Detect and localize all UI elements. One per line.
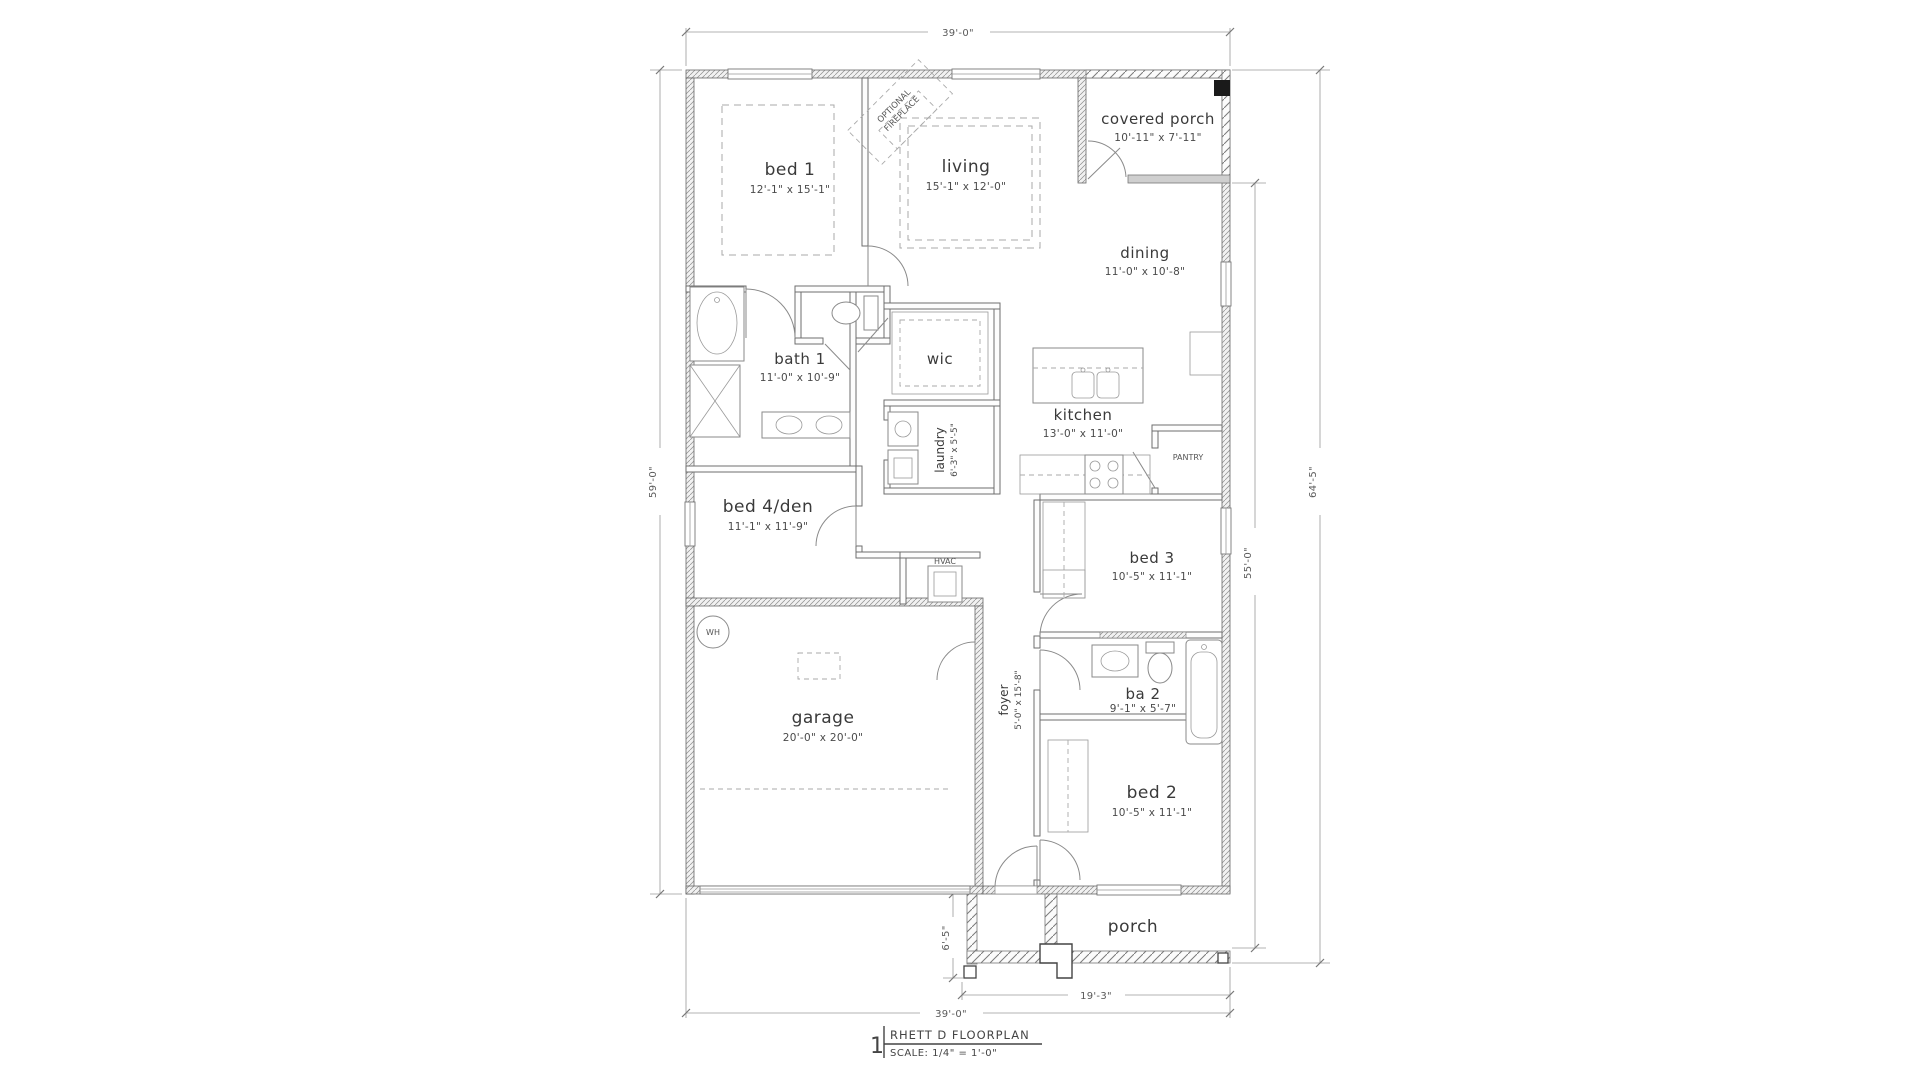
dim-porch-depth: 6'-5" <box>941 925 952 950</box>
dashed-areas <box>722 105 1040 255</box>
room-pantry-label: PANTRY <box>1173 453 1204 462</box>
dim-top-width: 39'-0" <box>942 28 974 39</box>
svg-text:living: living <box>942 157 991 177</box>
dim-porch-width: 19'-3" <box>1080 991 1112 1002</box>
front-porch-structure <box>964 894 1230 978</box>
porch-corner-column <box>1040 944 1072 978</box>
svg-text:20'-0" x 20'-0": 20'-0" x 20'-0" <box>783 732 863 744</box>
vanity-bath1-icon <box>762 412 850 438</box>
room-wic-label: wic <box>927 350 953 368</box>
toilet-ba2-icon <box>1146 642 1174 683</box>
svg-text:12'-1" x 15'-1": 12'-1" x 15'-1" <box>750 184 830 196</box>
svg-text:bed 1: bed 1 <box>765 160 816 180</box>
svg-text:10'-11" x 7'-11": 10'-11" x 7'-11" <box>1114 132 1201 144</box>
hvac-unit-icon <box>928 566 962 602</box>
room-bath1: bath 1 11'-0" x 10'-9" <box>760 350 840 384</box>
svg-text:kitchen: kitchen <box>1054 406 1113 424</box>
room-living: living 15'-1" x 12'-0" <box>926 157 1006 193</box>
plan-scale: SCALE: 1/4" = 1'-0" <box>890 1048 997 1059</box>
range-icon <box>1085 455 1123 494</box>
plan-title: RHETT D FLOORPLAN <box>890 1028 1030 1042</box>
room-bed3: bed 3 10'-5" x 11'-1" <box>1112 549 1192 583</box>
svg-text:10'-5" x 11'-1": 10'-5" x 11'-1" <box>1112 807 1192 819</box>
svg-text:laundry: laundry <box>933 427 947 473</box>
svg-text:11'-0" x 10'-9": 11'-0" x 10'-9" <box>760 372 840 384</box>
window-bed3 <box>1221 508 1231 554</box>
room-garage: garage 20'-0" x 20'-0" <box>783 708 863 744</box>
kitchen-island <box>1033 348 1143 403</box>
svg-text:foyer: foyer <box>997 684 1011 715</box>
dim-bottom-width: 39'-0" <box>935 1009 967 1020</box>
washer-dryer-icon <box>888 412 918 484</box>
svg-text:13'-0" x 11'-0": 13'-0" x 11'-0" <box>1043 428 1123 440</box>
room-foyer: foyer 5'-0" x 15'-8" <box>997 670 1024 729</box>
bed3-closet <box>1043 502 1085 598</box>
room-bed2: bed 2 10'-5" x 11'-1" <box>1112 783 1192 819</box>
interior-walls <box>686 78 1222 886</box>
window-bed2 <box>1097 885 1181 895</box>
room-labels: bed 1 12'-1" x 15'-1" living 15'-1" x 12… <box>706 110 1215 937</box>
porch-post <box>964 966 976 978</box>
room-dining: dining 11'-0" x 10'-8" <box>1105 244 1185 278</box>
floorplan-svg: 39'-0" 59'-0" 55'-0" 64'-5" 6'-5" <box>0 0 1920 1080</box>
porch-post <box>1218 953 1228 963</box>
svg-text:11'-1" x 11'-9": 11'-1" x 11'-9" <box>728 521 808 533</box>
bathtub-ba2-icon <box>1186 640 1222 744</box>
svg-text:covered porch: covered porch <box>1101 110 1215 128</box>
svg-text:bed 2: bed 2 <box>1127 783 1178 803</box>
window-bed1 <box>728 69 812 79</box>
room-bed1: bed 1 12'-1" x 15'-1" <box>750 160 830 196</box>
svg-text:dining: dining <box>1120 244 1169 262</box>
room-bed4: bed 4/den 11'-1" x 11'-9" <box>723 497 814 533</box>
svg-text:15'-1" x 12'-0": 15'-1" x 12'-0" <box>926 181 1006 193</box>
svg-text:garage: garage <box>792 708 855 728</box>
dim-right-inner: 55'-0" <box>1243 547 1254 579</box>
room-ba2: ba 2 9'-1" x 5'-7" <box>1110 685 1177 715</box>
sheet-number: 1 <box>870 1034 884 1059</box>
vanity-ba2-icon <box>1092 645 1138 677</box>
bathtub-icon <box>690 287 744 361</box>
svg-text:bed 3: bed 3 <box>1129 549 1174 567</box>
svg-text:bed 4/den: bed 4/den <box>723 497 814 517</box>
front-door <box>995 846 1037 894</box>
bed2-closet <box>1048 740 1088 832</box>
shower-icon <box>690 365 740 437</box>
garage-door <box>700 886 970 894</box>
fridge-space <box>1190 332 1222 375</box>
title-block: 1 RHETT D FLOORPLAN SCALE: 1/4" = 1'-0" <box>870 1026 1042 1059</box>
room-kitchen: kitchen 13'-0" x 11'-0" <box>1043 406 1123 440</box>
svg-text:10'-5" x 11'-1": 10'-5" x 11'-1" <box>1112 571 1192 583</box>
room-laundry: laundry 6'-3" x 5'-5" <box>933 423 960 477</box>
dim-left-height: 59'-0" <box>648 466 659 498</box>
svg-text:9'-1" x 5'-7": 9'-1" x 5'-7" <box>1110 703 1177 715</box>
dim-right-outer: 64'-5" <box>1308 466 1319 498</box>
svg-text:11'-0" x 10'-8": 11'-0" x 10'-8" <box>1105 266 1185 278</box>
svg-text:ba 2: ba 2 <box>1125 685 1160 703</box>
room-hvac-label: HVAC <box>934 557 956 566</box>
window-dining <box>1221 262 1231 306</box>
svg-text:bath 1: bath 1 <box>774 350 825 368</box>
svg-text:6'-3" x 5'-5": 6'-3" x 5'-5" <box>950 423 960 477</box>
water-heater-label: WH <box>706 628 720 637</box>
svg-text:5'-0" x 15'-8": 5'-0" x 15'-8" <box>1014 670 1024 729</box>
room-porch-label: porch <box>1108 917 1158 937</box>
window-living <box>952 69 1040 79</box>
porch-column <box>1214 80 1230 96</box>
window-bed4 <box>685 502 695 546</box>
room-covered-porch: covered porch 10'-11" x 7'-11" <box>1101 110 1215 144</box>
floorplan-page: 39'-0" 59'-0" 55'-0" 64'-5" 6'-5" <box>0 0 1920 1080</box>
